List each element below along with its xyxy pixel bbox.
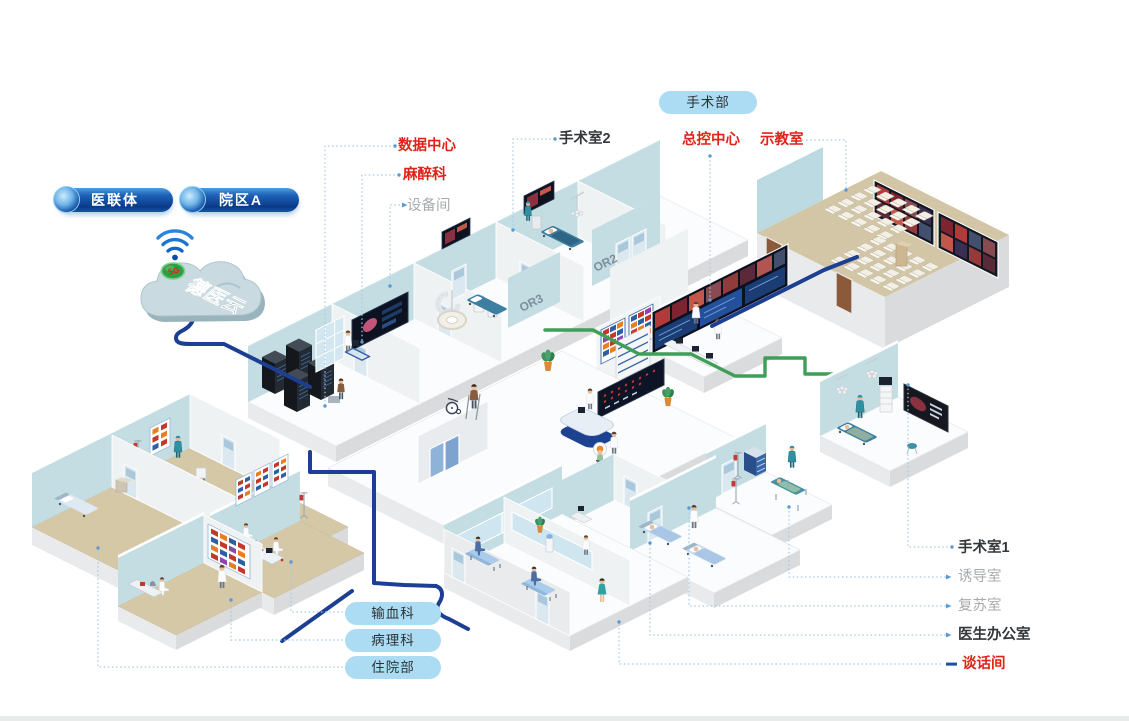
wifi-icon: [158, 231, 192, 260]
classroom-door2-icon: [836, 272, 852, 314]
talk-room-dash: [946, 663, 957, 666]
pill-surgery-dept[interactable]: 手术部: [659, 91, 757, 114]
bottom-edge: [0, 716, 1129, 721]
cloud-platform: 德医云 5G: [141, 231, 265, 322]
or1-equipment-tower: [879, 377, 892, 412]
pill-pathology-dept[interactable]: 病理科: [345, 629, 441, 652]
waiting-door-icon: [452, 548, 465, 584]
label-recovery: 复苏室: [958, 598, 1002, 614]
label-master-control: 总控中心: [682, 132, 740, 148]
room-or1: [820, 340, 968, 487]
waiting-door2-icon: [536, 590, 549, 626]
label-or2: 手术室2: [559, 131, 611, 147]
pill-campus-a[interactable]: 院区A: [183, 188, 299, 212]
cloud-5g-badge: 5G: [162, 263, 185, 279]
hospital-isometric-diagram: OR3 OR2: [0, 0, 1129, 721]
label-talk-room: 谈话间: [962, 656, 1006, 672]
pill-medical-consortium[interactable]: 医联体: [57, 188, 173, 212]
room-demo-classroom: [757, 144, 1009, 349]
induction-drawer-cart: [744, 447, 766, 476]
label-demo-room: 示教室: [760, 132, 804, 148]
pill-blood-dept[interactable]: 输血科: [345, 602, 441, 625]
induction-nurse-figure: [788, 446, 796, 468]
water-dispenser: [546, 534, 553, 552]
label-induction: 诱导室: [958, 569, 1002, 585]
label-or1: 手术室1: [958, 540, 1010, 556]
label-data-center: 数据中心: [398, 138, 456, 154]
label-anesthesia: 麻醉科: [403, 167, 447, 183]
cloud-icon: 德医云 5G: [141, 262, 265, 322]
ward-door-icon: [222, 435, 235, 471]
label-doctor-office: 医生办公室: [958, 627, 1031, 643]
leader-talk-room: [619, 622, 941, 664]
pill-inpatient-dept[interactable]: 住院部: [345, 656, 441, 679]
label-equipment: 设备间: [407, 198, 451, 214]
